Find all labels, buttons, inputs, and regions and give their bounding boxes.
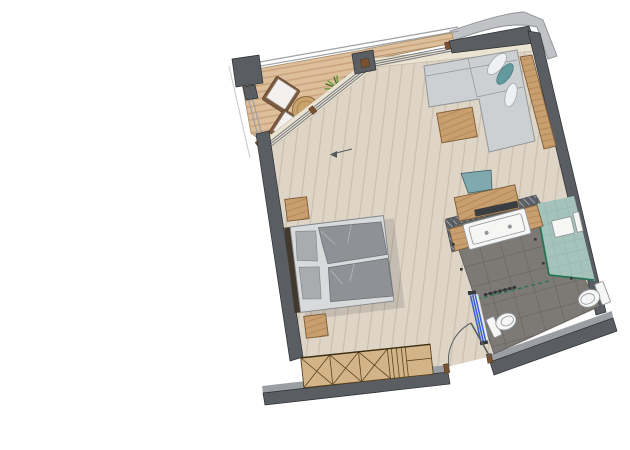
floor-plan — [0, 0, 630, 450]
coffee-table — [437, 107, 478, 143]
balcony-pillar-stem — [243, 85, 258, 100]
floor-plan-canvas — [0, 0, 630, 450]
nightstand-1 — [285, 197, 310, 222]
bed-pillow-1 — [294, 229, 320, 263]
bed-pillow-2 — [299, 265, 323, 301]
balcony-pillar — [232, 55, 263, 87]
double-bed — [284, 214, 405, 321]
door-post-corner — [360, 58, 369, 67]
nightstand-2 — [304, 314, 329, 339]
